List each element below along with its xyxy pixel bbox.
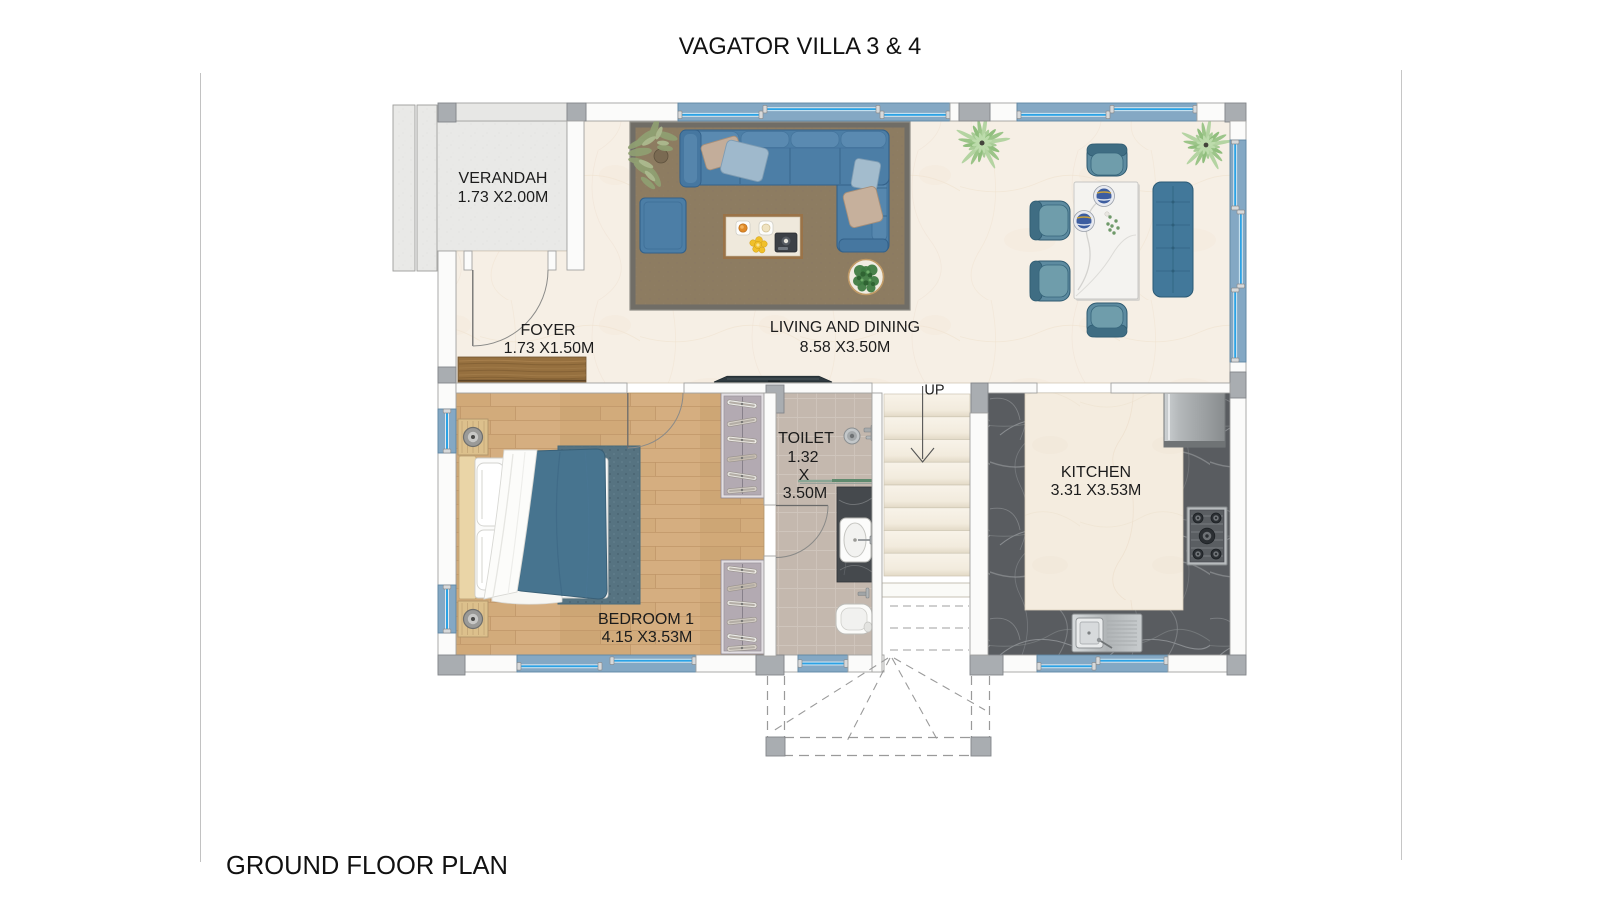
svg-text:TOILET: TOILET	[778, 430, 834, 447]
svg-text:1.73 X1.50M: 1.73 X1.50M	[504, 340, 595, 357]
svg-text:X: X	[799, 467, 810, 484]
svg-text:VAGATOR VILLA 3 & 4: VAGATOR VILLA 3 & 4	[679, 34, 922, 60]
svg-text:1.32: 1.32	[787, 449, 818, 466]
svg-text:LIVING AND DINING: LIVING AND DINING	[770, 319, 920, 336]
svg-text:1.73 X2.00M: 1.73 X2.00M	[458, 189, 549, 206]
svg-text:3.31 X3.53M: 3.31 X3.53M	[1051, 482, 1142, 499]
svg-text:KITCHEN: KITCHEN	[1061, 464, 1131, 481]
svg-text:GROUND FLOOR PLAN: GROUND FLOOR PLAN	[226, 852, 508, 880]
svg-text:BEDROOM 1: BEDROOM 1	[598, 611, 694, 628]
svg-text:UP: UP	[924, 383, 944, 399]
svg-text:3.50M: 3.50M	[783, 485, 827, 502]
svg-text:VERANDAH: VERANDAH	[459, 170, 548, 187]
svg-text:FOYER: FOYER	[520, 322, 575, 339]
svg-text:4.15 X3.53M: 4.15 X3.53M	[602, 629, 693, 646]
svg-text:8.58 X3.50M: 8.58 X3.50M	[800, 339, 891, 356]
